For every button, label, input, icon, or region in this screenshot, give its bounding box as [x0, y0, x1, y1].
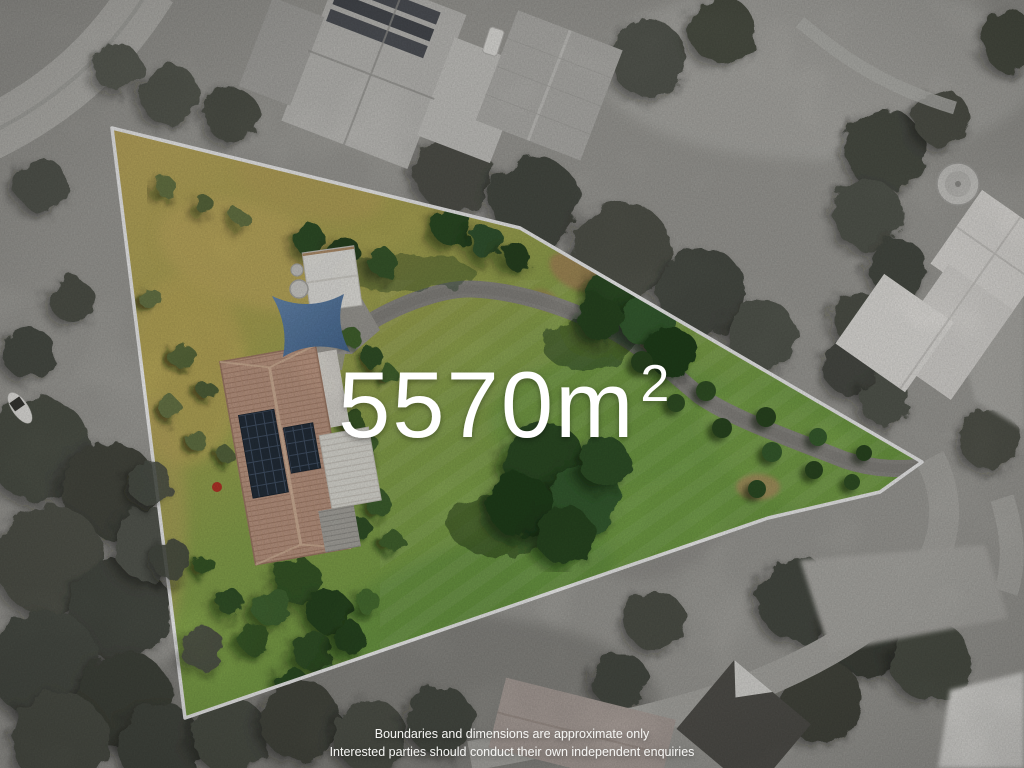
- area-overlay: 5570m2: [338, 352, 671, 457]
- area-superscript: 2: [640, 355, 671, 413]
- area-value: 5570m: [338, 352, 635, 457]
- disclaimer-line-2: Interested parties should conduct their …: [330, 745, 695, 759]
- aerial-scene: 5570m2 Boundaries and dimensions are app…: [0, 0, 1024, 768]
- area-label: 5570m2: [338, 352, 671, 457]
- aerial-property-photo: 5570m2 Boundaries and dimensions are app…: [0, 0, 1024, 768]
- disclaimer-line-1: Boundaries and dimensions are approximat…: [375, 727, 650, 741]
